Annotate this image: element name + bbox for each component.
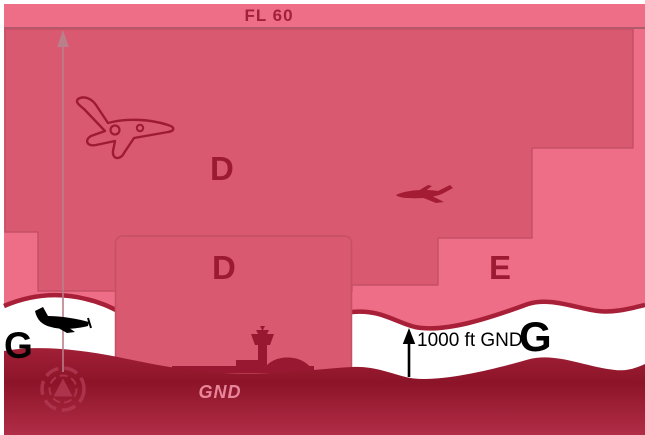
class-g-right-label: G xyxy=(519,316,552,358)
flight-level-label: FL 60 xyxy=(4,7,534,24)
class-d-upper-label: D xyxy=(210,152,234,185)
class-d-lower-label: D xyxy=(212,251,236,284)
agl-height-label: 1000 ft GND xyxy=(417,331,523,350)
airspace-diagram: FL 60 D D E G G 1000 ft GND GND xyxy=(0,0,645,435)
ground-label: GND xyxy=(170,383,270,401)
diagram-canvas xyxy=(0,0,645,435)
class-e-label: E xyxy=(489,251,511,284)
class-g-left-label: G xyxy=(4,327,33,364)
